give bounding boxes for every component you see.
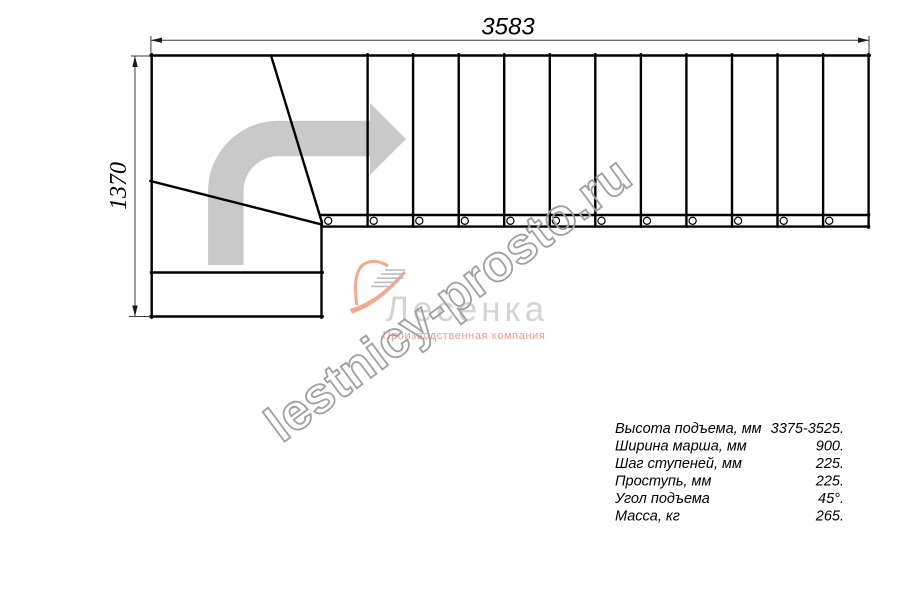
svg-text:45°.: 45°. <box>818 491 844 507</box>
svg-text:1370: 1370 <box>106 162 132 210</box>
svg-text:3583: 3583 <box>481 14 535 41</box>
svg-text:Высота подъема, мм: Высота подъема, мм <box>615 421 762 437</box>
svg-text:225.: 225. <box>815 474 844 490</box>
svg-text:3375-3525.: 3375-3525. <box>771 421 844 437</box>
svg-text:225.: 225. <box>815 456 844 472</box>
svg-text:Масса, кг: Масса, кг <box>615 509 680 525</box>
svg-text:265.: 265. <box>815 509 844 525</box>
svg-text:Ширина марша, мм: Ширина марша, мм <box>615 439 747 455</box>
svg-text:Угол подъема: Угол подъема <box>614 491 710 507</box>
svg-text:Шаг ступеней, мм: Шаг ступеней, мм <box>615 456 742 472</box>
svg-text:Проступь, мм: Проступь, мм <box>615 474 711 490</box>
svg-text:900.: 900. <box>816 439 844 455</box>
